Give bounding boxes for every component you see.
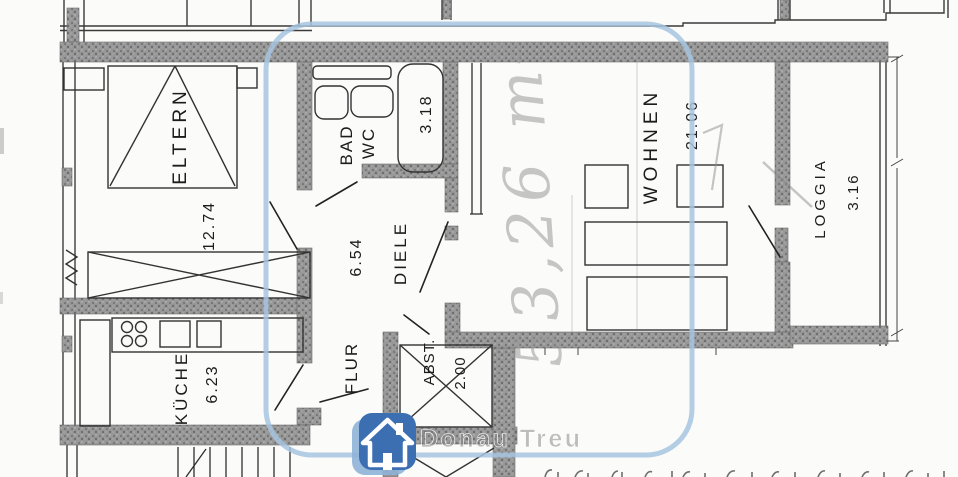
highlight-outline [266, 24, 692, 455]
clipped-text-fragments [545, 470, 944, 477]
room-area-diele: 6.54 [348, 237, 365, 276]
room-label-abst: ABST. [421, 339, 438, 386]
room-label-loggia: LOGGIA [812, 157, 829, 239]
wardrobe-eltern [66, 250, 310, 298]
room-label-wohnen: WOHNEN [641, 88, 662, 205]
room-area-eltern: 12.74 [201, 201, 218, 251]
room-area-loggia: 3.16 [845, 173, 862, 210]
scanned-floorplan: 53,26 m² ELTERN 12.74 BAD WC 3.18 DIELE … [0, 0, 958, 477]
agency-logo [352, 413, 416, 475]
staircase [178, 447, 290, 477]
floorplan-drawing: 53,26 m² ELTERN 12.74 BAD WC 3.18 DIELE … [0, 0, 958, 477]
room-area-abst: 2.00 [452, 356, 469, 389]
room-area-kueche: 6.23 [204, 364, 221, 403]
room-label-flur: FLUR [342, 342, 361, 394]
room-area-wc: 3.18 [418, 94, 435, 133]
watermark-text: Donau Treu [420, 425, 583, 453]
bed-eltern [64, 66, 257, 188]
room-label-wc: WC [359, 127, 378, 159]
room-label-eltern: ELTERN [170, 87, 191, 185]
handwritten-area-note: 53,26 m² [480, 29, 576, 370]
room-label-kueche: KÜCHE [172, 351, 191, 426]
kitchen-fixtures [80, 318, 303, 426]
room-label-diele: DIELE [391, 221, 410, 285]
room-label-bad: BAD [337, 125, 356, 166]
